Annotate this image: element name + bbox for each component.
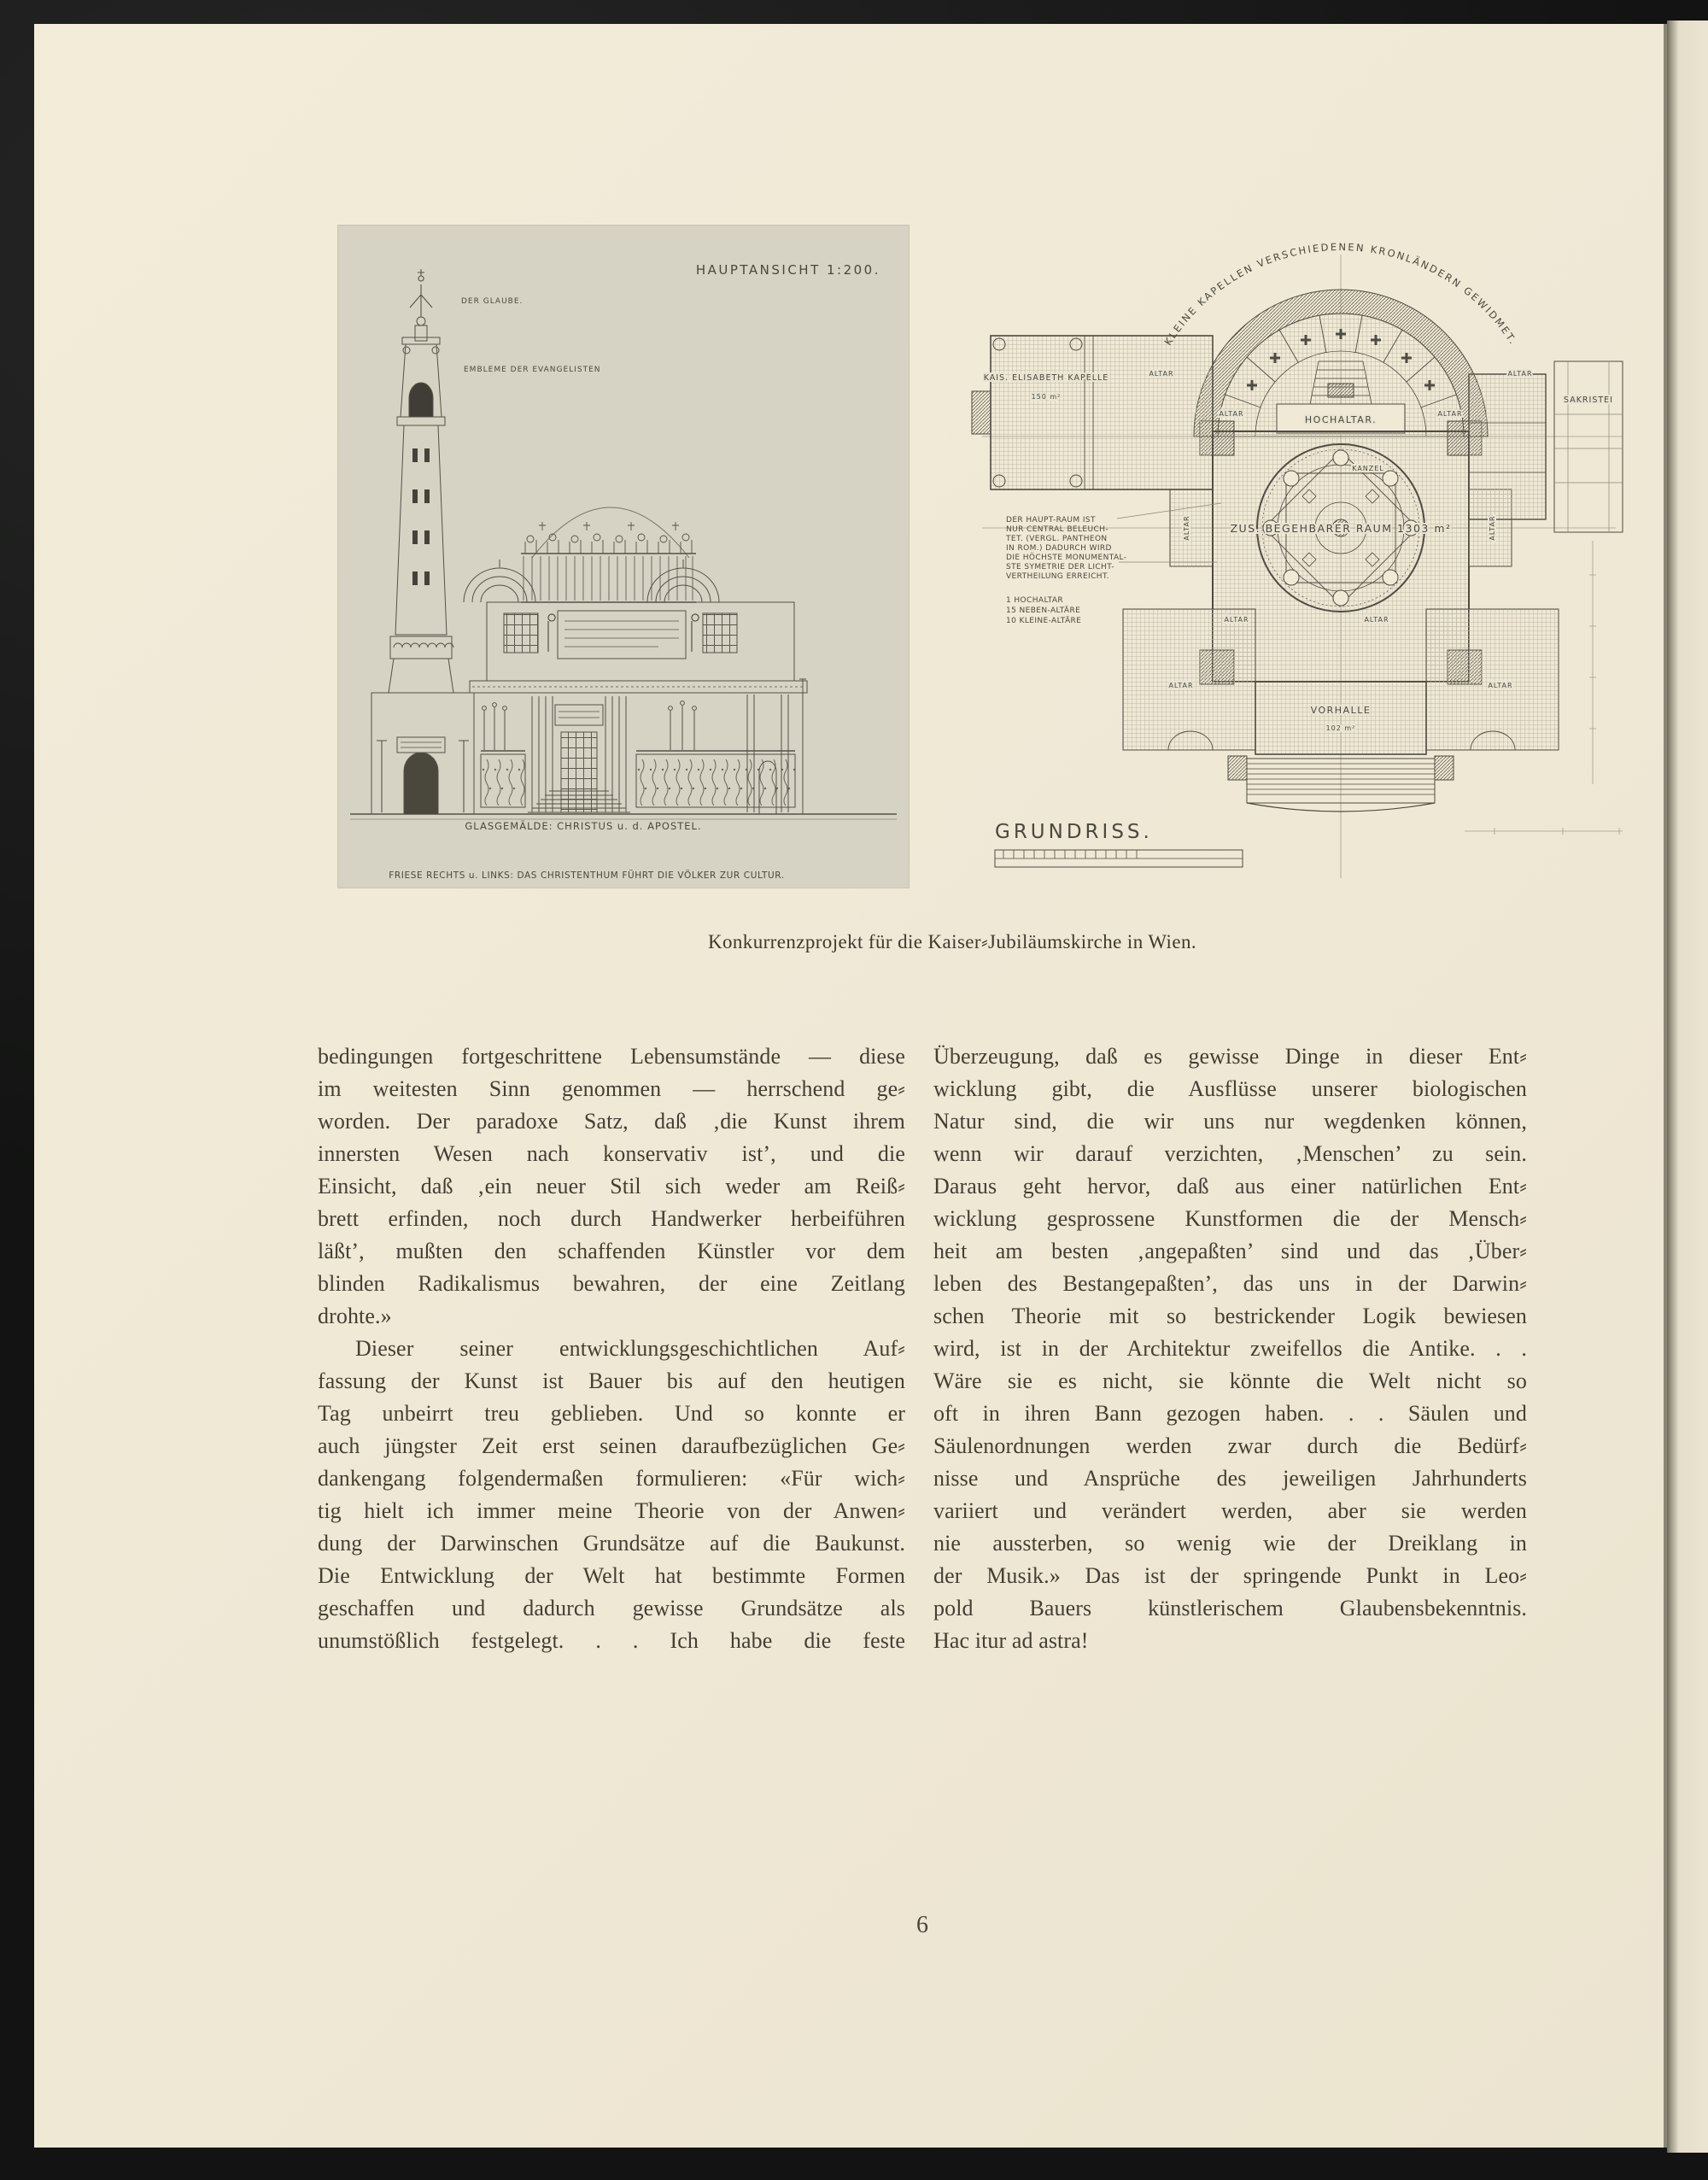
note-line: TET. (VERGL. PANTHEON xyxy=(1005,535,1108,543)
altar-label: ALTAR xyxy=(1489,515,1496,540)
note-line: DIE HÖCHSTE MONUMENTAL- xyxy=(1006,553,1126,562)
altar-label: ALTAR xyxy=(1219,410,1243,418)
altar-list-line: 15 NEBEN-ALTÄRE xyxy=(1006,606,1080,615)
sakristei-label: SAKRISTEI xyxy=(1564,396,1613,405)
glass-painting-caption: GLASGEMÄLDE: CHRISTUS u. d. APOSTEL. xyxy=(465,819,701,832)
altar-list-line: 10 KLEINE-ALTÄRE xyxy=(1006,616,1081,625)
hochaltar-label: HOCHALTAR. xyxy=(1305,414,1377,425)
chapel-label: KAIS. ELISABETH KAPELLE xyxy=(984,373,1109,383)
note-line: NUR CENTRAL BELEUCH- xyxy=(1006,525,1108,534)
altar-label: ALTAR xyxy=(1149,370,1173,378)
frieze-caption: FRIESE RECHTS u. LINKS: DAS CHRISTENTHUM… xyxy=(389,870,785,881)
altar-list-line: 1 HOCHALTAR xyxy=(1006,596,1063,605)
vorhalle-label: VORHALLE xyxy=(1311,705,1372,716)
altar-label: ALTAR xyxy=(1507,370,1532,378)
chapel-area: 150 m² xyxy=(1032,393,1062,401)
statue-note: DER GLAUBE. xyxy=(461,297,523,306)
book-page: DER GLAUBE. EMBLEME DER EVANGELISTEN HAU… xyxy=(34,24,1667,2148)
next-page-edge xyxy=(1667,21,1708,2153)
note-line: IN ROM.) DADURCH WIRD xyxy=(1006,544,1112,553)
paragraph: bedingungen fortgeschrittene Lebensumstä… xyxy=(318,1040,905,1333)
note-line: STE SYMETRIE DER LICHT- xyxy=(1006,563,1114,571)
paragraph: Dieser seiner entwicklungsgeschichtliche… xyxy=(318,1333,905,1657)
figure-caption: Konkurrenzprojekt für die Kaiser⸗Jubiläu… xyxy=(376,931,1529,953)
text-column-left: bedingungen fortgeschrittene Lebensumstä… xyxy=(318,1040,905,1657)
floorplan-drawing: KLEINE KAPELLEN VERSCHIEDENEN KRONLÄNDER… xyxy=(965,233,1631,891)
paragraph: Überzeugung, daß es gewisse Dinge in die… xyxy=(933,1040,1527,1657)
plan-note-block: DER HAUPT-RAUM IST NUR CENTRAL BELEUCH- … xyxy=(1005,516,1126,625)
altar-label: ALTAR xyxy=(1183,515,1190,540)
altar-label: ALTAR xyxy=(1437,410,1462,418)
elevation-title: HAUPTANSICHT 1:200. xyxy=(696,262,880,278)
elevation-linework xyxy=(350,269,897,819)
altar-label: ALTAR xyxy=(1364,616,1389,624)
altar-label: ALTAR xyxy=(1488,682,1512,689)
elevation-plate: DER GLAUBE. EMBLEME DER EVANGELISTEN HAU… xyxy=(337,225,910,888)
main-room-label: ZUS. BEGEHBARER RAUM 1303 m² xyxy=(1230,522,1451,535)
floorplan-plate: KLEINE KAPELLEN VERSCHIEDENEN KRONLÄNDER… xyxy=(965,233,1631,891)
text-column-right: Überzeugung, daß es gewisse Dinge in die… xyxy=(933,1040,1527,1657)
elevation-drawing: DER GLAUBE. EMBLEME DER EVANGELISTEN HAU… xyxy=(337,225,910,888)
scanned-book-photo: DER GLAUBE. EMBLEME DER EVANGELISTEN HAU… xyxy=(0,0,1708,2180)
altar-label: ALTAR xyxy=(1168,682,1193,689)
evangelists-note: EMBLEME DER EVANGELISTEN xyxy=(464,366,601,374)
kanzel-label: KANZEL xyxy=(1352,465,1384,472)
plan-title: GRUNDRISS. xyxy=(995,821,1153,843)
note-line: VERTHEILUNG ERREICHT. xyxy=(1006,572,1109,581)
altar-label: ALTAR xyxy=(1224,616,1249,624)
vorhalle-area: 102 m² xyxy=(1326,724,1356,732)
elevation-annotations: DER GLAUBE. EMBLEME DER EVANGELISTEN xyxy=(461,297,601,374)
page-number: 6 xyxy=(318,1912,1527,1939)
note-line: DER HAUPT-RAUM IST xyxy=(1006,516,1096,524)
